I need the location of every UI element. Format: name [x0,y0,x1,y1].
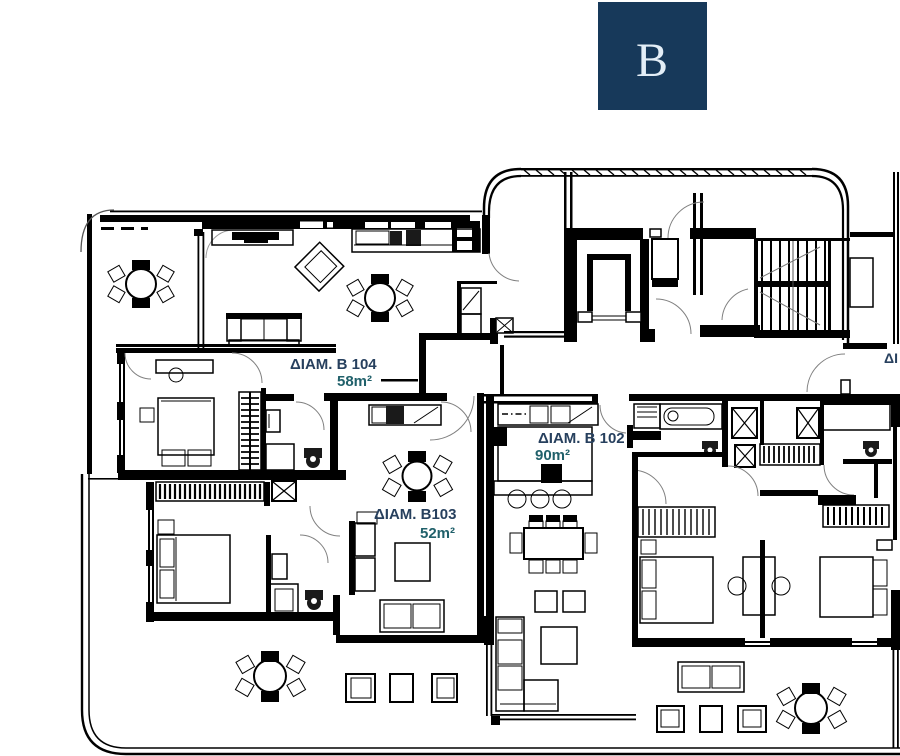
svg-text:ΔI: ΔI [884,350,898,366]
svg-text:B: B [636,34,668,87]
svg-text:90m²: 90m² [535,447,570,464]
svg-text:58m²: 58m² [337,373,372,390]
svg-text:ΔIAM. B 104: ΔIAM. B 104 [290,356,377,373]
svg-text:ΔIAM. B 102: ΔIAM. B 102 [538,430,625,447]
svg-text:52m²: 52m² [420,525,455,542]
svg-text:ΔIAM. B103: ΔIAM. B103 [374,506,456,523]
